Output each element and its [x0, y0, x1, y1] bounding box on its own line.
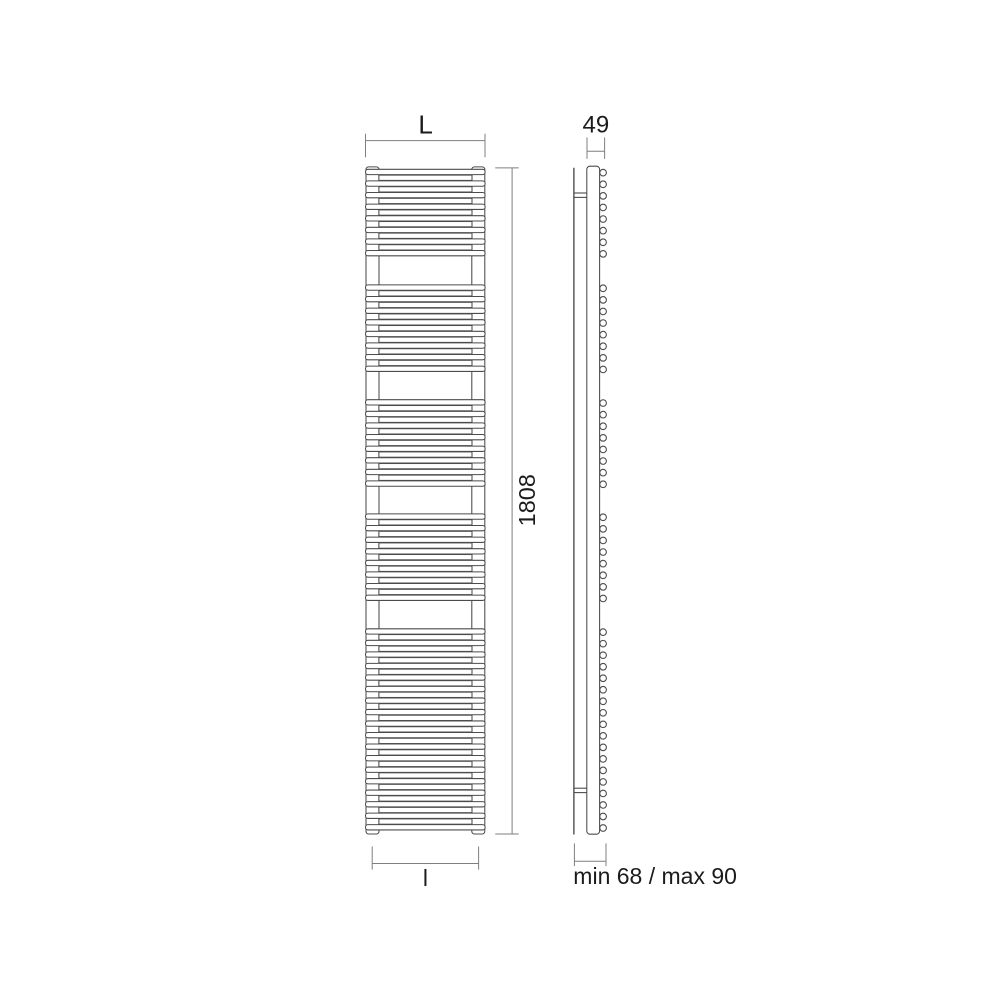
svg-text:49: 49 [583, 112, 610, 139]
svg-text:l: l [423, 865, 428, 891]
svg-text:L: L [418, 109, 432, 139]
svg-text:1808: 1808 [514, 474, 540, 526]
svg-text:min 68 / max 90: min 68 / max 90 [573, 863, 737, 889]
